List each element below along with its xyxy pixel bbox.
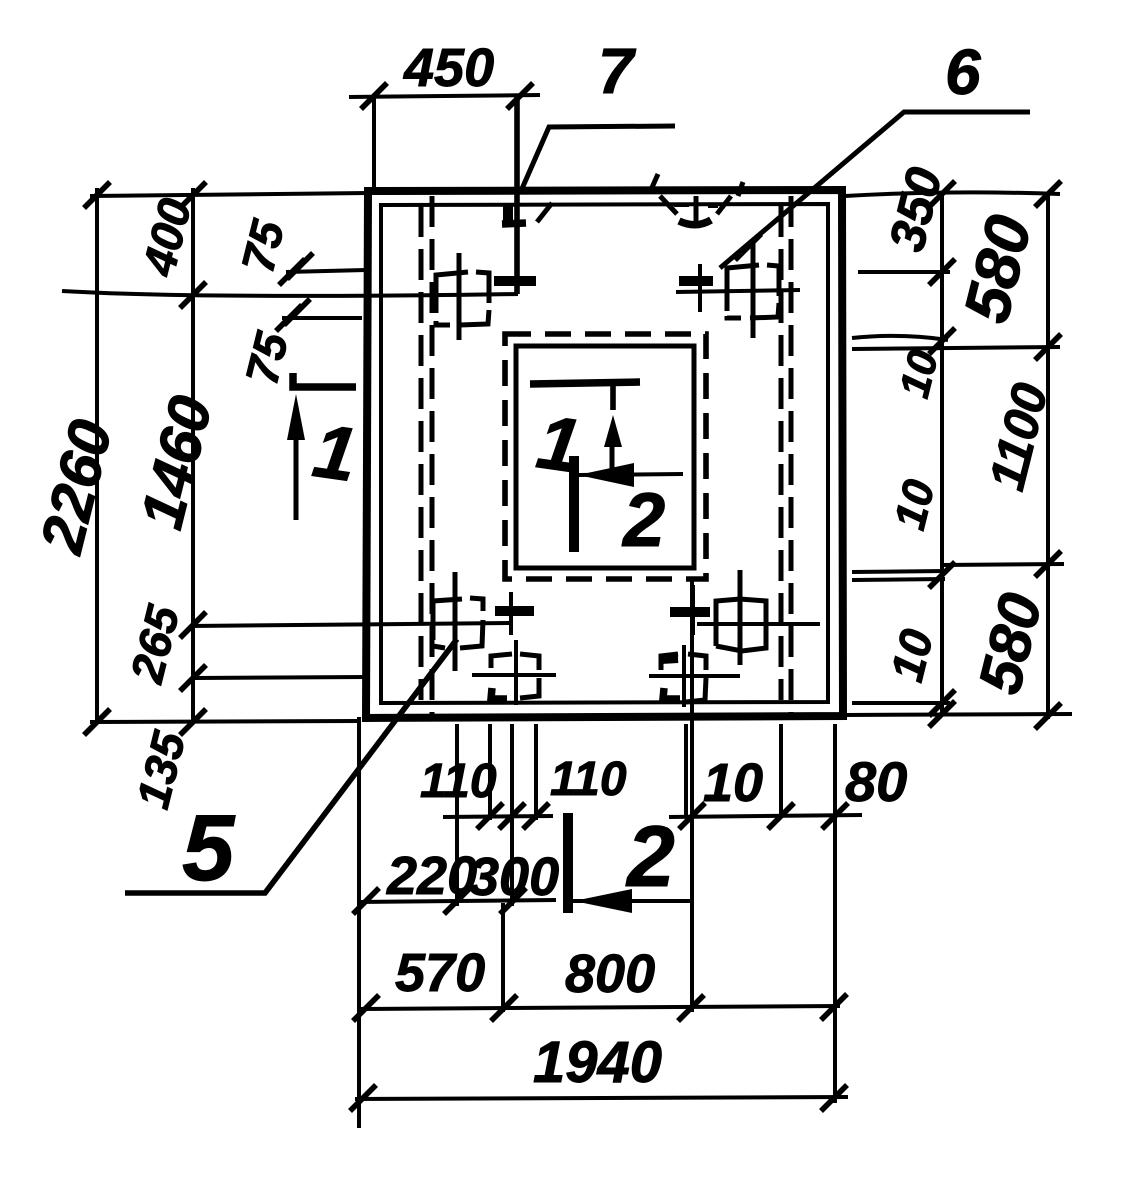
svg-text:6: 6 xyxy=(945,36,981,108)
svg-text:220: 220 xyxy=(386,846,477,906)
svg-text:1940: 1940 xyxy=(533,1030,662,1095)
svg-text:10: 10 xyxy=(703,753,763,813)
svg-text:110: 110 xyxy=(420,755,497,808)
svg-text:80: 80 xyxy=(845,750,907,813)
svg-text:800: 800 xyxy=(565,944,655,1004)
svg-text:570: 570 xyxy=(395,943,485,1003)
svg-text:7: 7 xyxy=(598,35,637,107)
svg-text:300: 300 xyxy=(469,847,559,907)
svg-text:2: 2 xyxy=(621,478,665,563)
svg-text:450: 450 xyxy=(403,38,494,98)
svg-text:2: 2 xyxy=(625,809,675,905)
svg-text:110: 110 xyxy=(550,753,627,806)
svg-text:5: 5 xyxy=(182,795,236,900)
